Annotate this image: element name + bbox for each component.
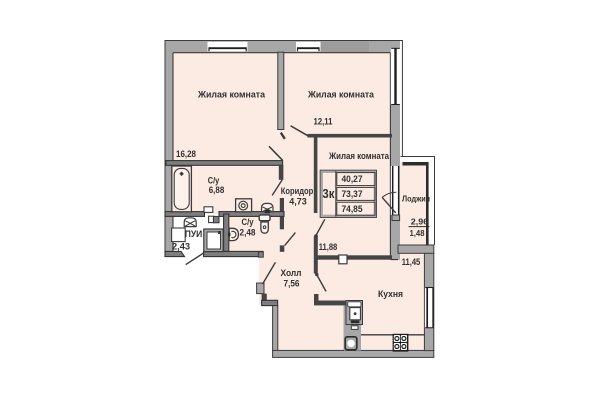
svg-text:6,88: 6,88 [209, 184, 225, 195]
svg-text:7,56: 7,56 [284, 277, 300, 288]
svg-text:Жилая комната: Жилая комната [307, 90, 375, 101]
svg-text:11,45: 11,45 [402, 256, 421, 267]
svg-text:1,48: 1,48 [410, 229, 426, 238]
svg-text:ПУИ: ПУИ [185, 228, 203, 239]
svg-text:2,48: 2,48 [240, 226, 256, 237]
svg-text:Лоджия: Лоджия [402, 195, 430, 204]
svg-text:Жилая комната: Жилая комната [328, 151, 389, 162]
svg-text:4,73: 4,73 [289, 196, 307, 207]
svg-text:Кухня: Кухня [378, 288, 403, 299]
svg-text:Жилая комната: Жилая комната [197, 90, 266, 101]
svg-text:С/у: С/у [242, 216, 255, 227]
svg-text:74,85: 74,85 [342, 204, 363, 214]
svg-text:2,43: 2,43 [172, 241, 190, 252]
svg-text:Холл: Холл [281, 267, 302, 278]
svg-text:11,88: 11,88 [319, 241, 338, 252]
svg-text:12,11: 12,11 [314, 115, 333, 126]
svg-text:16,28: 16,28 [176, 148, 196, 159]
svg-text:40,27: 40,27 [342, 174, 363, 184]
svg-text:3к: 3к [322, 187, 335, 201]
svg-text:Коридор: Коридор [281, 185, 314, 196]
svg-text:73,37: 73,37 [342, 189, 363, 199]
svg-text:2,96: 2,96 [411, 217, 429, 226]
